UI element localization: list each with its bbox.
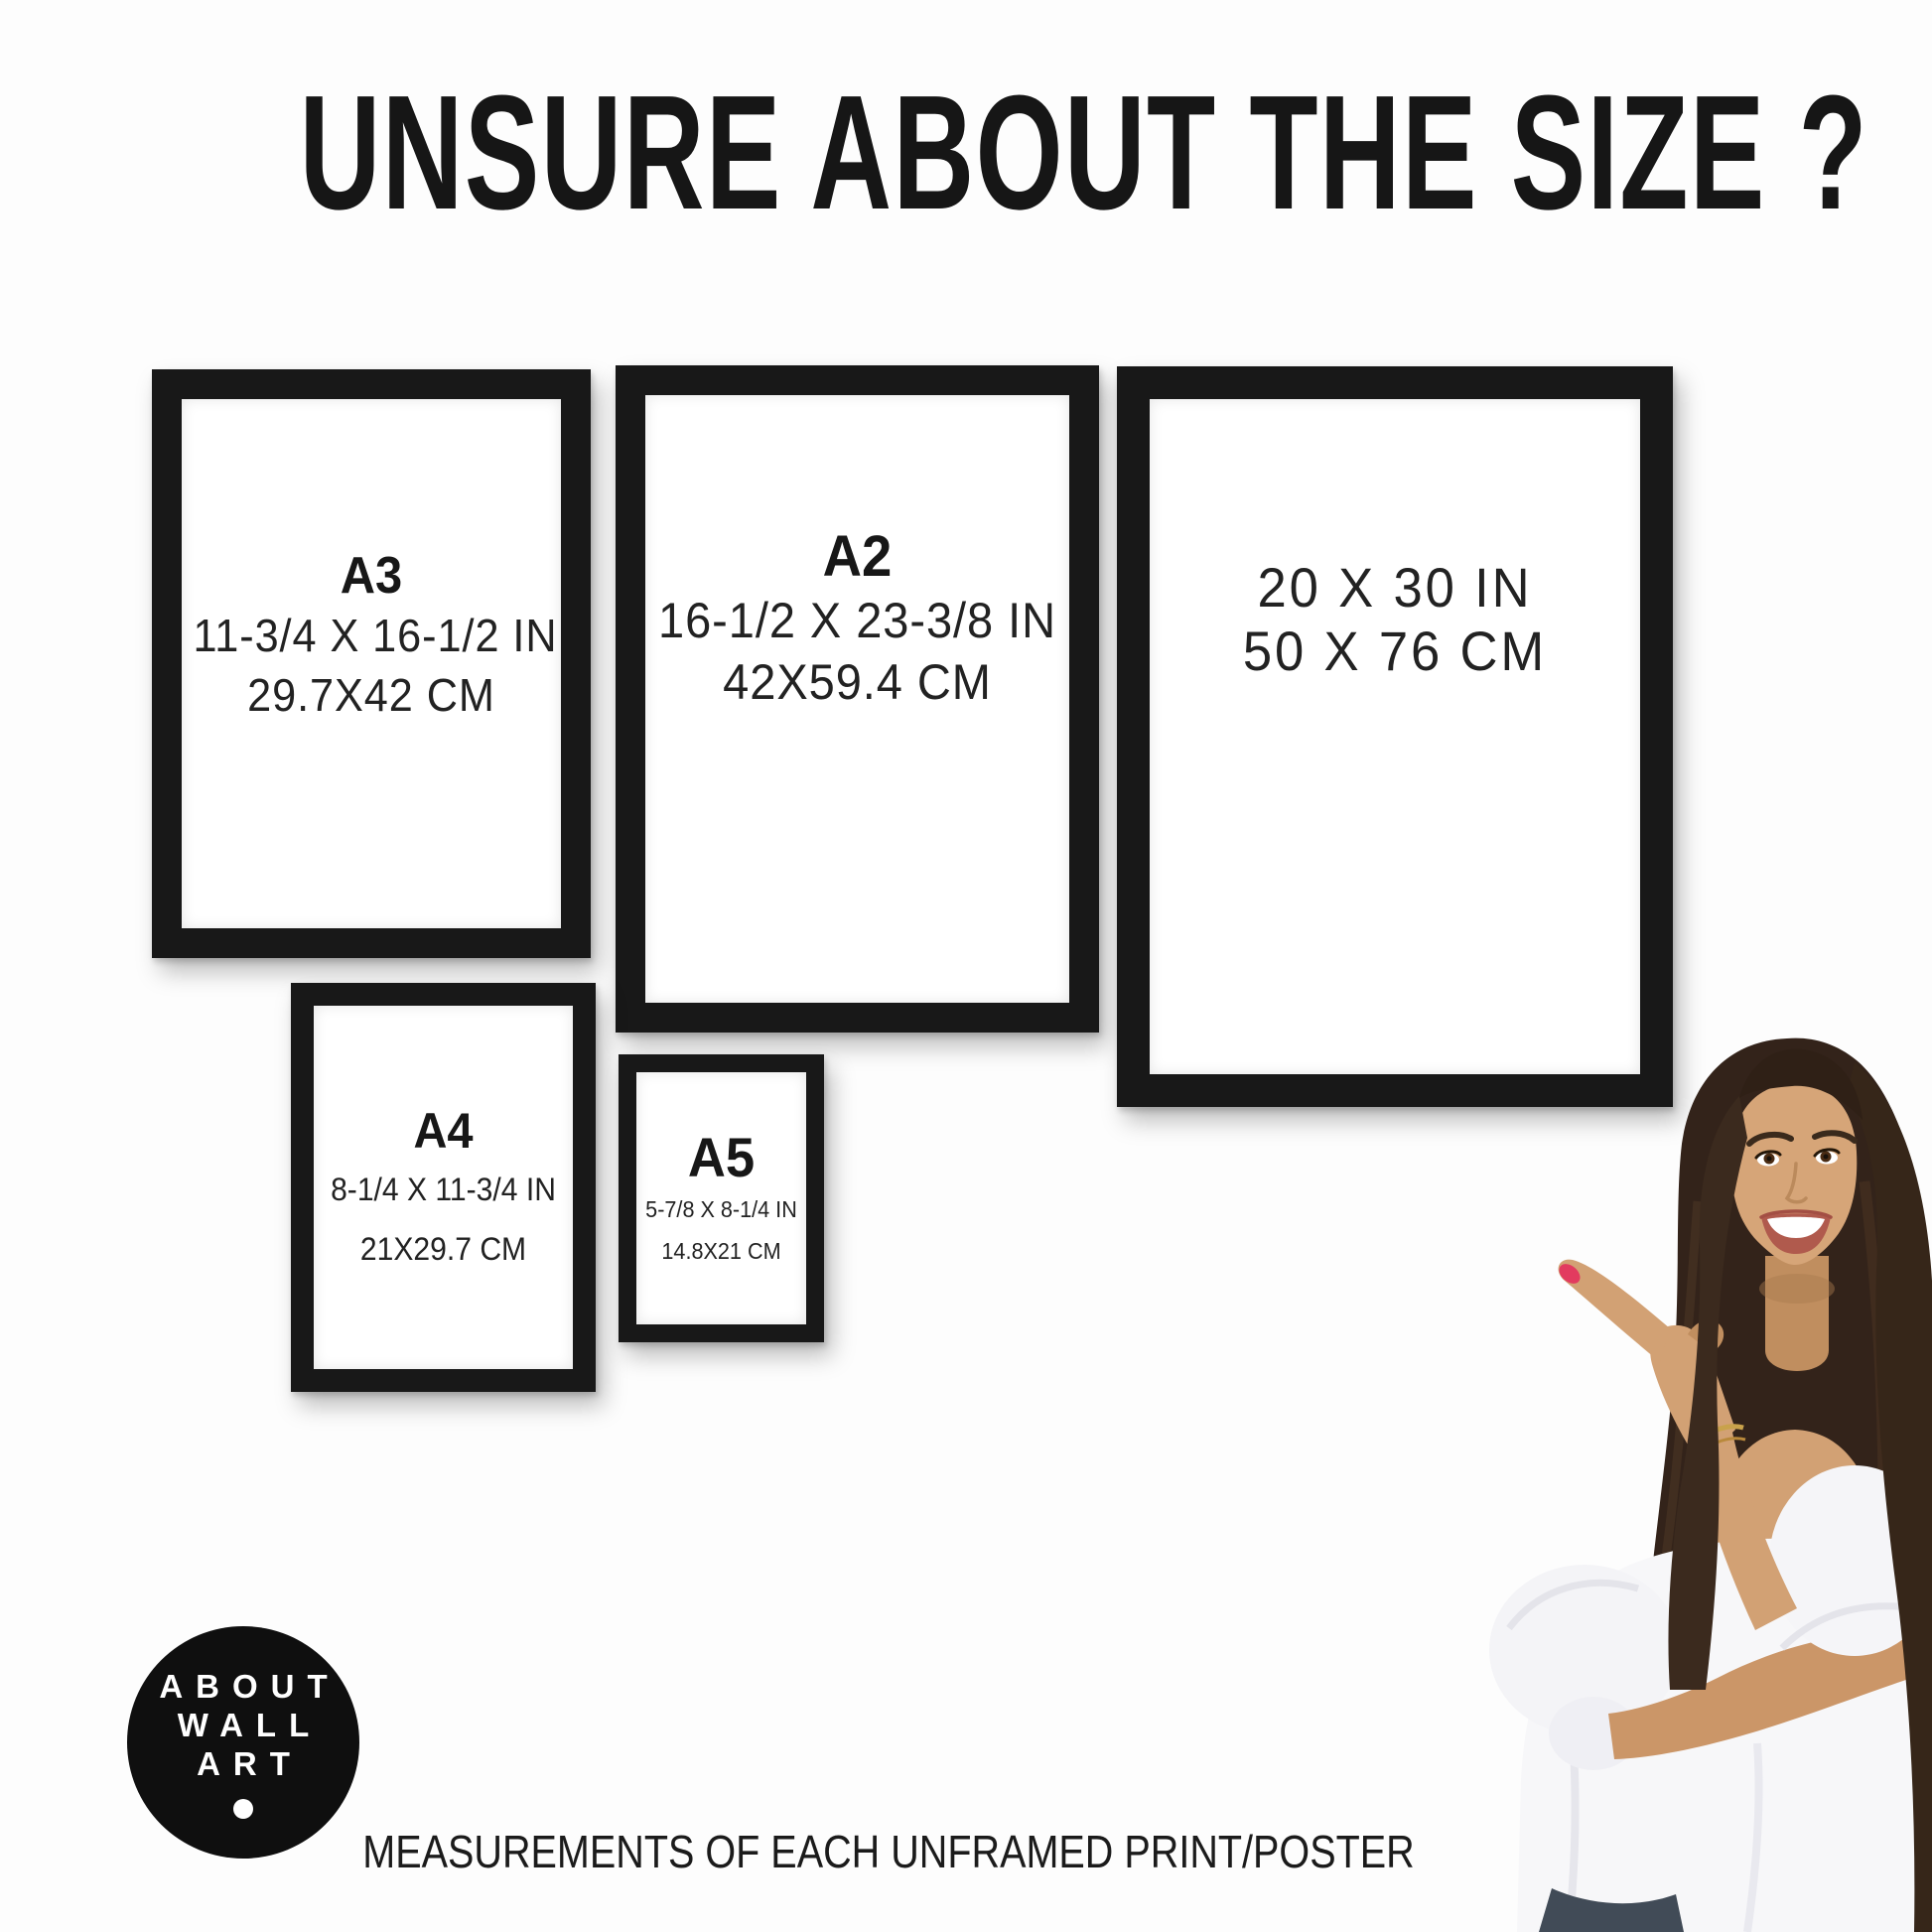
frame-a2-text: A2 16-1/2 X 23-3/8 IN 42X59.4 CM <box>658 524 1056 713</box>
logo-text-about: ABOUT <box>146 1667 340 1706</box>
size-inches: 8-1/4 X 11-3/4 IN <box>322 1168 565 1211</box>
size-frame-20x30: 20 X 30 IN 50 X 76 CM <box>1117 366 1673 1107</box>
woman-photo <box>1390 1033 1932 1932</box>
frame-a3-text: A3 11-3/4 X 16-1/2 IN 29.7X42 CM <box>193 546 549 725</box>
frame-a4-text: A4 8-1/4 X 11-3/4 IN 21X29.7 CM <box>322 1102 565 1271</box>
page-title: UNSURE ABOUT THE SIZE ? <box>300 60 1633 246</box>
frame-mat <box>1150 399 1640 1074</box>
size-guide-page: UNSURE ABOUT THE SIZE ? A3 11-3/4 X 16-1… <box>0 0 1932 1932</box>
size-inches: 5-7/8 X 8-1/4 IN <box>641 1192 801 1226</box>
logo-text-art: ART <box>184 1744 303 1783</box>
size-label: A2 <box>658 524 1056 590</box>
size-inches: 20 X 30 IN <box>1165 556 1625 620</box>
size-cm: 14.8X21 CM <box>641 1234 801 1268</box>
size-frame-a2: A2 16-1/2 X 23-3/8 IN 42X59.4 CM <box>616 365 1099 1033</box>
logo-dot-icon <box>233 1799 253 1819</box>
size-frame-a4: A4 8-1/4 X 11-3/4 IN 21X29.7 CM <box>291 983 596 1392</box>
size-label: A5 <box>641 1127 801 1188</box>
size-inches: 16-1/2 X 23-3/8 IN <box>658 590 1056 651</box>
size-inches: 11-3/4 X 16-1/2 IN <box>193 606 549 665</box>
frame-a5-text: A5 5-7/8 X 8-1/4 IN 14.8X21 CM <box>641 1127 801 1268</box>
size-frame-a3: A3 11-3/4 X 16-1/2 IN 29.7X42 CM <box>152 369 591 958</box>
size-frame-a5: A5 5-7/8 X 8-1/4 IN 14.8X21 CM <box>619 1054 824 1342</box>
size-cm: 29.7X42 CM <box>193 665 549 725</box>
size-cm: 42X59.4 CM <box>658 651 1056 713</box>
size-cm: 21X29.7 CM <box>322 1227 565 1271</box>
size-label: A4 <box>322 1102 565 1160</box>
brand-logo: ABOUT WALL ART <box>127 1626 359 1859</box>
frame-20x30-text: 20 X 30 IN 50 X 76 CM <box>1165 556 1625 683</box>
logo-text-wall: WALL <box>165 1706 322 1744</box>
size-label: A3 <box>193 546 549 606</box>
size-cm: 50 X 76 CM <box>1165 620 1625 683</box>
